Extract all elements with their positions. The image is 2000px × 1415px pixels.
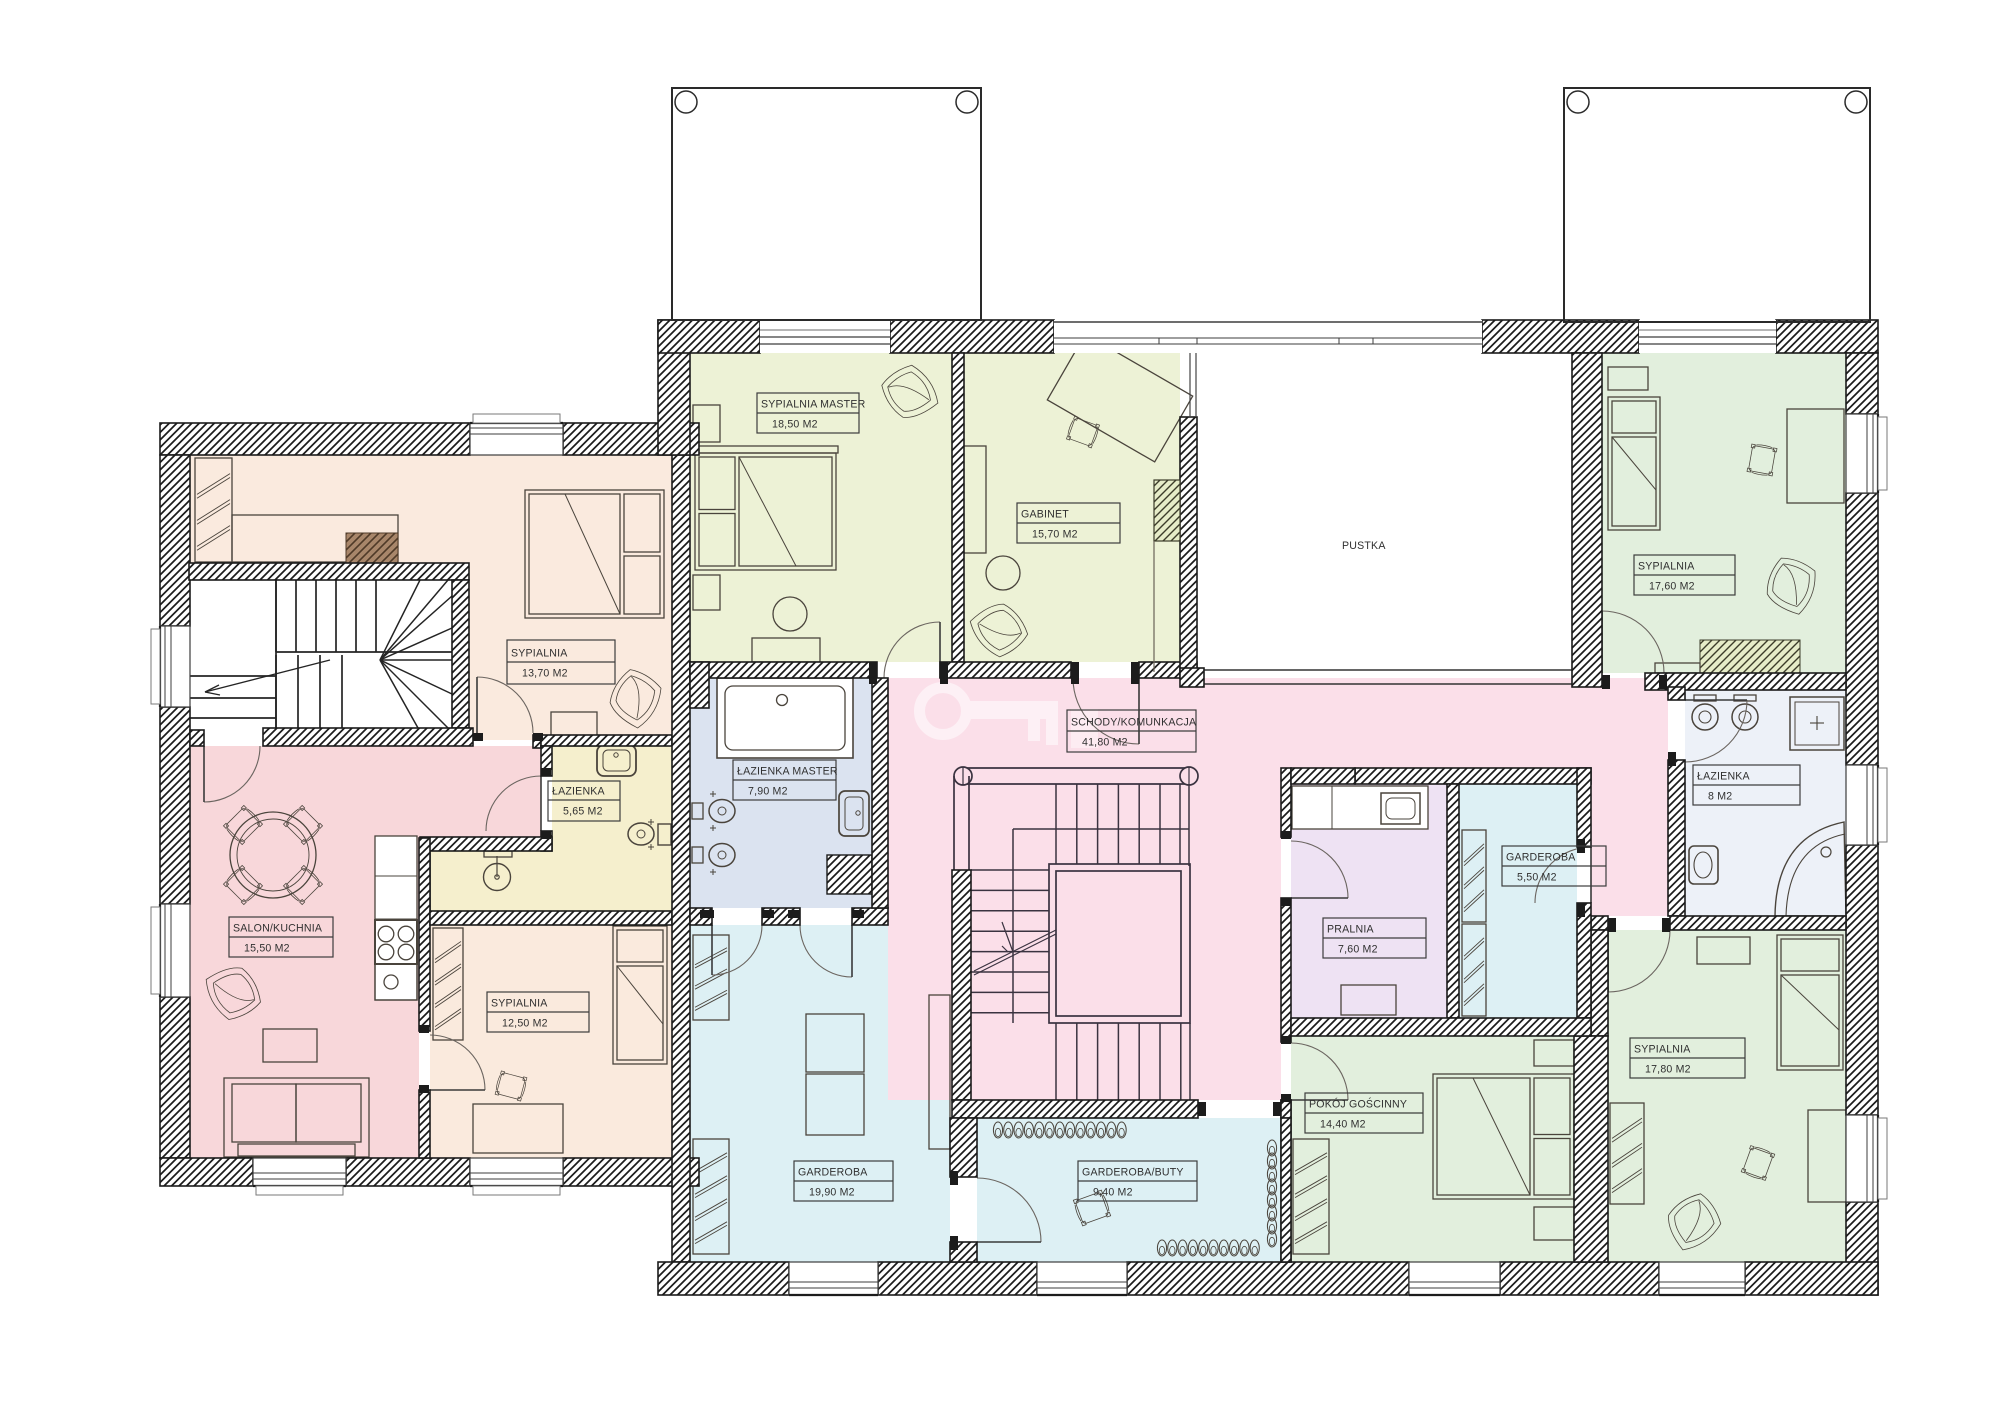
svg-text:SALON/KUCHNIA: SALON/KUCHNIA — [233, 923, 323, 935]
svg-text:14,40 M2: 14,40 M2 — [1320, 1119, 1366, 1131]
svg-text:GARDEROBA: GARDEROBA — [798, 1167, 868, 1179]
svg-text:7,90 M2: 7,90 M2 — [748, 786, 788, 798]
svg-text:SYPIALNIA MASTER: SYPIALNIA MASTER — [761, 399, 866, 411]
svg-text:15,50 M2: 15,50 M2 — [244, 943, 290, 955]
svg-text:8 M2: 8 M2 — [1708, 791, 1732, 803]
svg-text:17,60 M2: 17,60 M2 — [1649, 581, 1695, 593]
svg-text:PRALNIA: PRALNIA — [1327, 924, 1374, 936]
svg-text:GABINET: GABINET — [1021, 509, 1069, 521]
svg-text:ŁAZIENKA: ŁAZIENKA — [1697, 771, 1751, 783]
svg-text:13,70 M2: 13,70 M2 — [522, 668, 568, 680]
svg-text:15,70 M2: 15,70 M2 — [1032, 529, 1078, 541]
svg-text:GARDEROBA/BUTY: GARDEROBA/BUTY — [1082, 1167, 1184, 1179]
svg-text:5,65 M2: 5,65 M2 — [563, 806, 603, 818]
svg-text:PUSTKA: PUSTKA — [1342, 540, 1386, 552]
svg-text:12,50 M2: 12,50 M2 — [502, 1018, 548, 1030]
svg-text:41,80 M2: 41,80 M2 — [1082, 737, 1128, 749]
svg-text:19,90 M2: 19,90 M2 — [809, 1187, 855, 1199]
svg-text:7,60 M2: 7,60 M2 — [1338, 944, 1378, 956]
svg-text:17,80 M2: 17,80 M2 — [1645, 1064, 1691, 1076]
svg-text:SYPIALNIA: SYPIALNIA — [1634, 1044, 1691, 1056]
svg-text:5,50 M2: 5,50 M2 — [1517, 872, 1557, 884]
svg-text:SYPIALNIA: SYPIALNIA — [511, 648, 568, 660]
svg-text:SYPIALNIA: SYPIALNIA — [1638, 561, 1695, 573]
svg-text:ŁAZIENKA: ŁAZIENKA — [552, 786, 606, 798]
svg-text:9,40 M2: 9,40 M2 — [1093, 1187, 1133, 1199]
svg-text:ŁAZIENKA MASTER: ŁAZIENKA MASTER — [737, 766, 838, 778]
svg-text:SCHODY/KOMUNKACJA: SCHODY/KOMUNKACJA — [1071, 717, 1197, 729]
svg-text:18,50 M2: 18,50 M2 — [772, 419, 818, 431]
svg-text:SYPIALNIA: SYPIALNIA — [491, 998, 548, 1010]
svg-text:POKÓJ GOŚCINNY: POKÓJ GOŚCINNY — [1309, 1098, 1407, 1111]
svg-text:GARDEROBA: GARDEROBA — [1506, 852, 1576, 864]
